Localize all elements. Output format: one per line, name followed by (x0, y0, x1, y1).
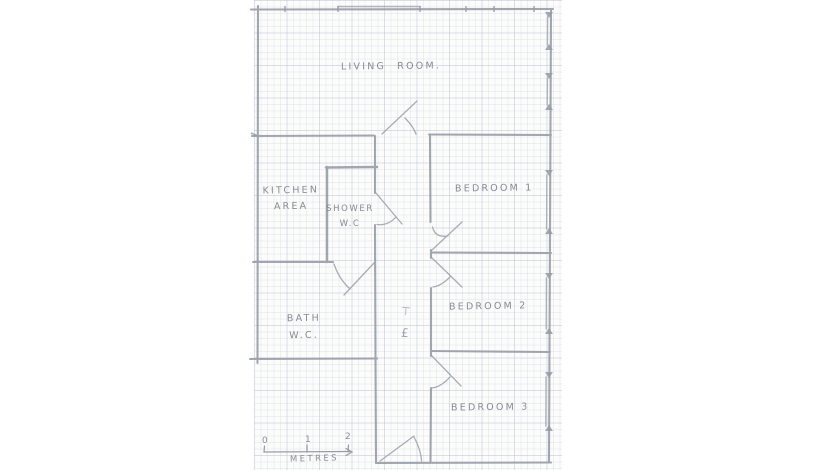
scale-tick-0: 0 (262, 436, 268, 446)
door-bedroom-3 (432, 356, 461, 388)
scale-tick-1: 1 (305, 435, 311, 445)
room-label-living-room: LIVING ROOM. (341, 60, 441, 72)
hallway-cupboard-mark-bottom: £ (401, 326, 409, 340)
scale-tick-2: 2 (345, 432, 351, 442)
room-label-bedroom-1: BEDROOM 1 (455, 182, 534, 194)
room-label-bath-wc: BATH W.C. (272, 310, 336, 345)
door-entrance (380, 436, 422, 461)
scanned-floorplan-page: { "rooms": { "living": "LIVING ROOM.", "… (0, 0, 815, 470)
outer-walls (250, 6, 553, 463)
door-bedroom-2 (432, 258, 462, 287)
hallway-cupboard-mark-top: ⊤ (401, 305, 411, 318)
scale-unit-label: METRES (290, 453, 339, 464)
room-label-bedroom-3: BEDROOM 3 (451, 402, 530, 414)
room-label-shower-wc: SHOWER W.C (323, 202, 377, 231)
door-living-room (382, 101, 417, 134)
room-label-bedroom-2: BEDROOM 2 (449, 300, 528, 312)
door-bath-wc (334, 263, 374, 295)
room-label-kitchen-area: KITCHEN AREA (259, 182, 324, 214)
door-bedroom-1 (432, 222, 462, 250)
door-shower-wc (376, 193, 402, 225)
